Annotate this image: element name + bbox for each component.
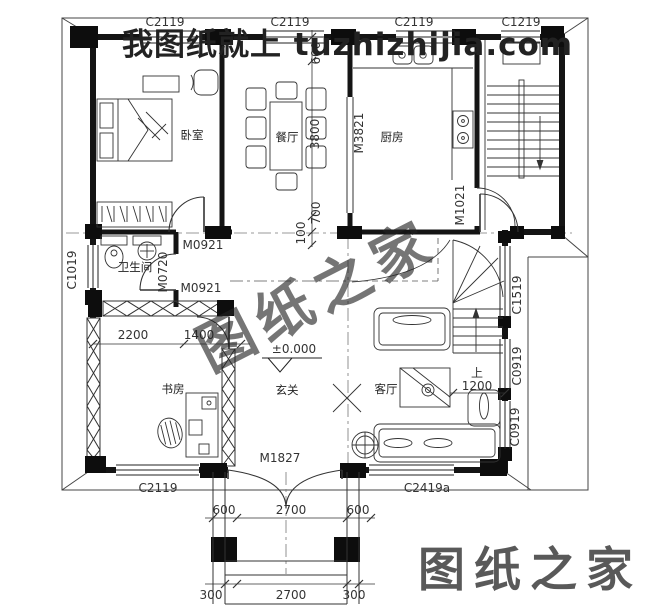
dim-base-right: 300: [343, 588, 366, 602]
dim-100: 100: [294, 222, 308, 245]
room-label-kitchen: 厨房: [381, 130, 404, 144]
room-label-dining: 餐厅: [276, 130, 299, 144]
door-label-bedroom: M0921: [183, 238, 224, 252]
room-label-hall: 玄关: [276, 383, 299, 397]
furniture-bedroom: [97, 70, 218, 227]
dim-1200: 1200: [462, 379, 493, 393]
watermark-corner: 图纸之家: [418, 543, 642, 598]
watermark-top: 我图纸就上 tuzhizhijia.com: [122, 27, 573, 63]
dim-2200: 2200: [118, 328, 149, 342]
door-label-entry: M1827: [260, 451, 301, 465]
dim-3800: 3800: [308, 119, 322, 150]
window-label-right-1: C1519: [510, 276, 524, 315]
window-label-left-1: C1019: [65, 251, 79, 290]
window-label-bottom-1: C2119: [139, 481, 178, 495]
room-label-living: 客厅: [375, 382, 398, 396]
staircase-main: [485, 40, 559, 230]
dim-porch-mid: 2700: [276, 503, 307, 517]
dim-base-left: 300: [200, 588, 223, 602]
dim-porch-left: 600: [213, 503, 236, 517]
dim-porch-right: 600: [347, 503, 370, 517]
window-label-right-3: C0919: [508, 408, 522, 447]
dim-700: 700: [309, 202, 323, 225]
furniture-kitchen: [353, 46, 473, 180]
door-label-stair: M1021: [453, 185, 467, 226]
window-label-bottom-2: C2419a: [404, 481, 450, 495]
floor-plan-drawing: 卧室 餐厅 厨房 卫生间 书房 玄关 客厅 C2119 C2119 C2119 …: [0, 0, 650, 611]
door-label-study: M0921: [181, 281, 222, 295]
window-label-right-2: C0919: [510, 347, 524, 386]
room-label-bedroom: 卧室: [181, 128, 204, 142]
room-label-bathroom: 卫生间: [118, 260, 153, 274]
door-label-bathroom: M0720: [156, 252, 170, 293]
stair-up-label: 上: [471, 366, 483, 380]
door-label-kitchen: M3821: [352, 113, 366, 154]
floor-plan-canvas: 卧室 餐厅 厨房 卫生间 书房 玄关 客厅 C2119 C2119 C2119 …: [0, 0, 650, 611]
level-symbol: [262, 358, 322, 372]
room-label-study: 书房: [162, 382, 185, 396]
furniture-study: [155, 393, 218, 457]
dim-base-mid: 2700: [276, 588, 307, 602]
